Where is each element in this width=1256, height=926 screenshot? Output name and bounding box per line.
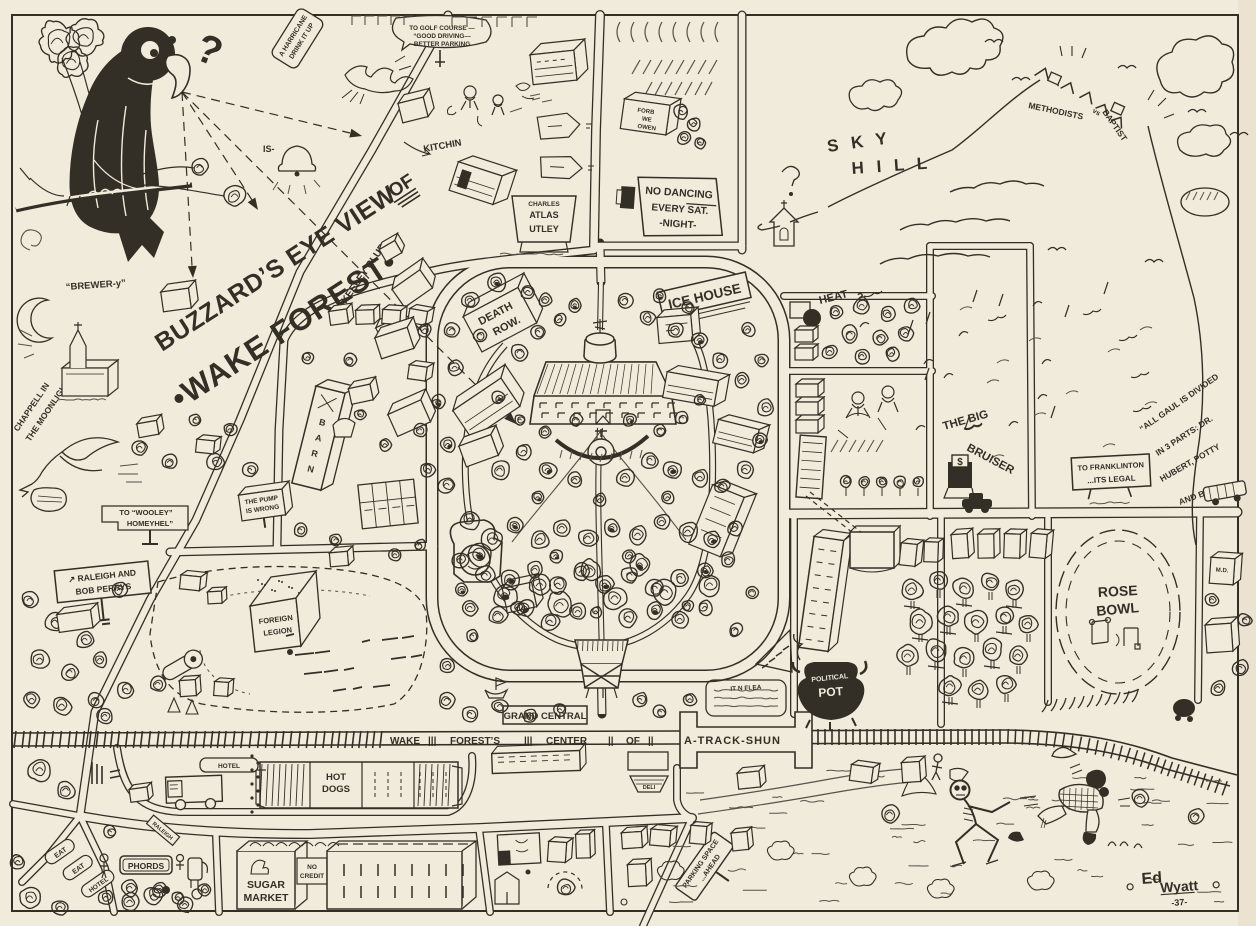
svg-text:A-TRACK-SHUN: A-TRACK-SHUN xyxy=(684,735,781,747)
svg-text:IS-: IS- xyxy=(263,144,275,154)
svg-text:-37-: -37- xyxy=(1171,897,1188,908)
svg-text:HOT: HOT xyxy=(326,772,346,783)
svg-text:M.D.: M.D. xyxy=(1216,568,1229,575)
svg-text:|||: ||| xyxy=(428,736,437,747)
svg-text:TO “WOOLEY”: TO “WOOLEY” xyxy=(119,508,172,517)
svg-text:ROSE: ROSE xyxy=(1098,582,1138,600)
svg-text:FOREST’S: FOREST’S xyxy=(450,736,500,747)
svg-text:OF: OF xyxy=(626,736,640,747)
svg-text:MARKET: MARKET xyxy=(244,892,289,904)
svg-text:CENTER: CENTER xyxy=(546,736,588,747)
svg-text:HOTEL: HOTEL xyxy=(218,763,240,770)
svg-text:||: || xyxy=(648,736,654,747)
svg-text:HOMEYHEL”: HOMEYHEL” xyxy=(127,519,174,528)
svg-text:DOGS: DOGS xyxy=(322,784,350,795)
svg-text:CHARLES: CHARLES xyxy=(528,201,560,208)
svg-text:“GOOD DRIVING—: “GOOD DRIVING— xyxy=(413,33,471,40)
svg-text:$: $ xyxy=(957,457,963,468)
svg-text:WAKE: WAKE xyxy=(390,736,420,747)
svg-text:BETTER PARKING: BETTER PARKING xyxy=(414,41,470,48)
svg-text:UTLEY: UTLEY xyxy=(529,224,559,234)
svg-text:SUGAR: SUGAR xyxy=(247,879,285,891)
svg-text:DELI: DELI xyxy=(643,785,656,791)
svg-text:TO GOLF COURSE —: TO GOLF COURSE — xyxy=(409,25,475,32)
svg-text:||: || xyxy=(608,736,614,747)
svg-text:POT: POT xyxy=(818,684,844,700)
svg-text:CREDIT: CREDIT xyxy=(300,873,324,880)
svg-text:GRAND CENTRAL: GRAND CENTRAL xyxy=(504,711,587,722)
svg-text:NO: NO xyxy=(307,864,317,871)
svg-text:ATLAS: ATLAS xyxy=(529,210,558,220)
svg-text:PHORDS: PHORDS xyxy=(128,861,165,871)
